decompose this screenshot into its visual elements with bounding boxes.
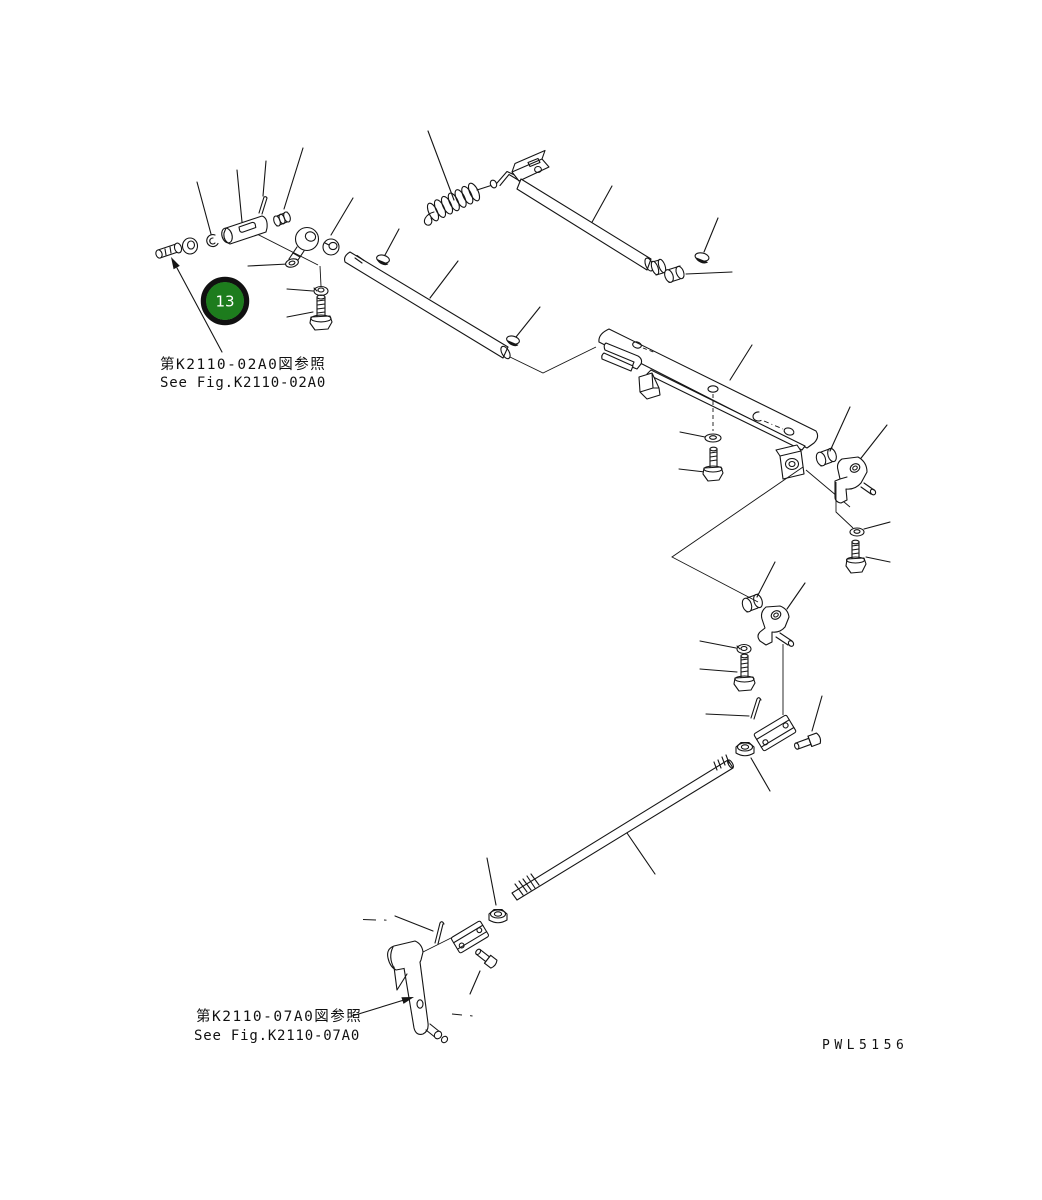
leader-line	[197, 182, 211, 234]
threaded-rod	[512, 760, 733, 900]
leader-line	[284, 148, 303, 209]
control-rod	[517, 179, 651, 270]
bolt	[734, 654, 755, 691]
leader-line	[700, 669, 737, 672]
leader-line	[706, 714, 749, 716]
rod-support-clamp	[758, 606, 795, 647]
leader-line	[812, 696, 822, 731]
washer	[850, 528, 864, 536]
spring-anchor-bracket	[512, 151, 549, 182]
control-rod	[345, 252, 508, 358]
pedal-lever-assembly	[363, 916, 498, 1044]
assembly-axis-line	[510, 347, 596, 373]
leader-line	[428, 131, 454, 200]
reference-note-1[interactable]: 第K2110-02A0図参照 See Fig.K2110-02A0	[160, 355, 326, 391]
right-clamp-assembly	[835, 425, 890, 573]
nut	[736, 743, 754, 756]
bolt	[846, 540, 866, 573]
middle-control-rod-assembly	[345, 229, 596, 373]
lower-clamp-assembly	[700, 562, 822, 791]
pin	[155, 242, 183, 259]
leader-line	[331, 198, 353, 235]
drawing-code: PWL5156	[822, 1038, 908, 1053]
bolt	[310, 295, 332, 330]
leader-line	[704, 218, 718, 252]
bushing	[272, 211, 291, 227]
leader-line	[866, 557, 890, 562]
reference-jp[interactable]: 第K2110-02A0図参照	[160, 355, 326, 373]
reference-note-2[interactable]: 第K2110-07A0図参照 See Fig.K2110-07A0	[194, 997, 414, 1044]
leader-line	[591, 186, 612, 224]
leader-line	[700, 641, 736, 648]
center-dash-dot	[363, 920, 376, 921]
leader-line	[237, 170, 242, 222]
leader-line	[430, 261, 458, 298]
spring-pin	[259, 197, 267, 214]
callout-13[interactable]: 13	[171, 257, 247, 352]
bushing	[663, 265, 686, 283]
leader-line	[787, 583, 805, 609]
washer	[705, 434, 721, 442]
reference-jp[interactable]: 第K2110-07A0図参照	[196, 1007, 362, 1025]
parts-diagram-page: 13 第K2110-02A0図参照 See Fig.K2110-02A0	[0, 0, 1042, 1200]
leader-line	[385, 229, 399, 255]
bolt	[703, 447, 723, 481]
leader-line	[516, 307, 540, 337]
cotter-pin	[751, 698, 761, 719]
reference-en[interactable]: See Fig.K2110-07A0	[194, 1028, 360, 1044]
half-moon-key	[506, 335, 520, 347]
assembly-axis-line	[320, 266, 321, 286]
bushing	[815, 447, 838, 467]
cotter-pin	[435, 922, 444, 944]
lock-washer	[737, 645, 751, 654]
return-spring	[424, 179, 498, 225]
washer	[183, 238, 198, 254]
leader-line	[858, 425, 887, 462]
leader-line	[679, 469, 705, 472]
nut	[489, 910, 507, 923]
threaded-rod-assembly	[487, 755, 735, 923]
snap-ring	[207, 235, 218, 247]
upper-control-rod-assembly	[517, 179, 732, 284]
exploded-parts-diagram: 13 第K2110-02A0図参照 See Fig.K2110-02A0	[0, 0, 1042, 1200]
assembly-axis-line	[672, 467, 803, 602]
leader-line	[287, 289, 313, 291]
bolt	[473, 947, 498, 969]
leader-line	[830, 407, 850, 451]
leader-line	[263, 161, 266, 196]
reference-en[interactable]: See Fig.K2110-02A0	[160, 375, 326, 391]
callout-number: 13	[215, 293, 234, 311]
return-spring-assembly	[424, 131, 549, 225]
leader-line	[757, 562, 775, 597]
leader-line	[730, 345, 752, 380]
leader-line	[680, 432, 705, 437]
arrow-icon	[171, 257, 180, 269]
leader-line	[627, 833, 655, 874]
bolt	[793, 732, 822, 751]
leader-line	[248, 264, 288, 266]
leader-line	[686, 272, 732, 274]
washer	[323, 239, 339, 255]
spacer	[754, 715, 797, 752]
leader-line	[864, 522, 890, 529]
mounting-plate-assembly	[599, 329, 850, 602]
leader-line	[395, 916, 433, 931]
pedal-lever	[388, 941, 449, 1044]
upper-left-hardware-cluster	[155, 148, 353, 330]
center-dash-dot	[452, 1014, 462, 1015]
spacer	[451, 921, 489, 954]
bushing-housing	[776, 445, 804, 479]
leader-line	[751, 758, 770, 791]
leader-line	[287, 312, 313, 317]
sleeve	[220, 216, 267, 244]
half-moon-key	[694, 252, 709, 265]
bushing	[741, 593, 764, 613]
half-moon-key	[376, 254, 390, 266]
plate-rod-bar	[647, 370, 805, 450]
lock-washer	[314, 287, 328, 296]
leader-line	[487, 858, 496, 905]
rod-support-clamp	[835, 457, 877, 503]
leader-line	[470, 971, 480, 994]
